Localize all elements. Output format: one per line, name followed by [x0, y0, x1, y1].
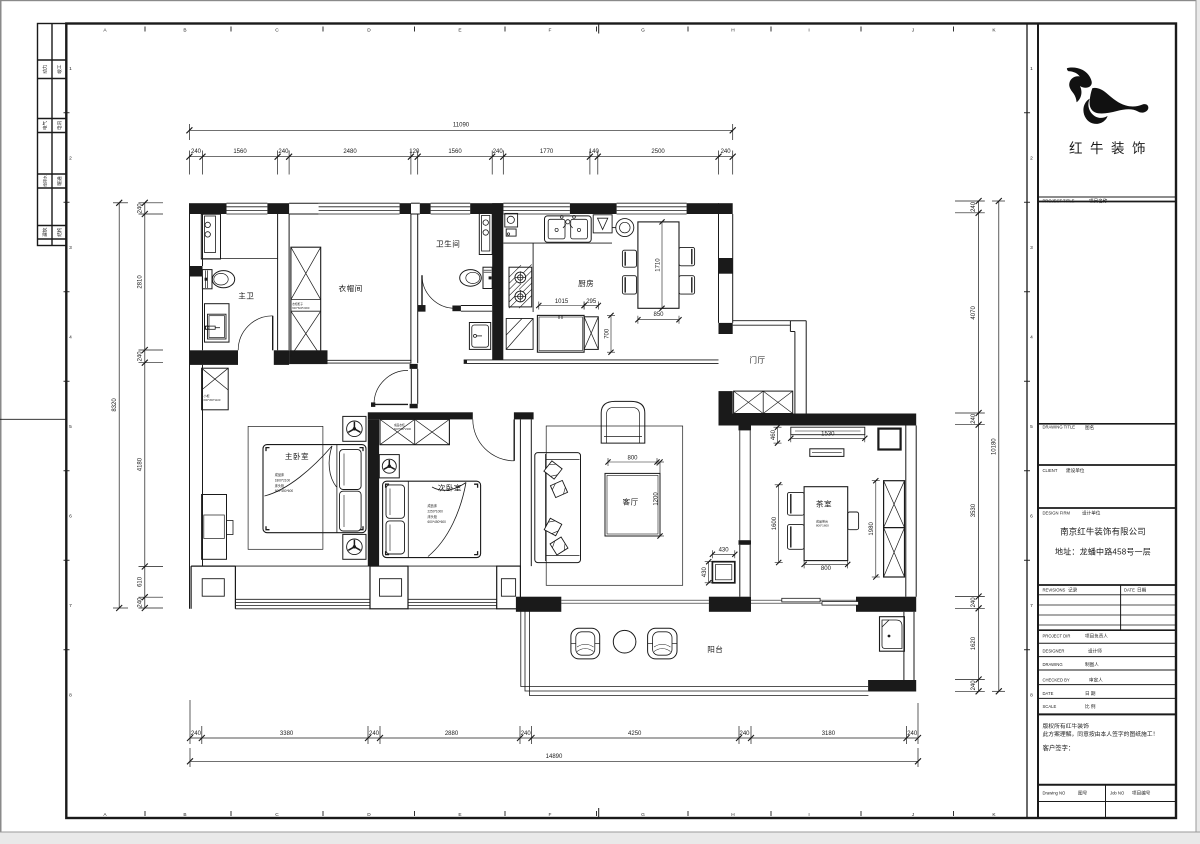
svg-text:H: H — [731, 28, 735, 34]
svg-text:F: F — [549, 812, 552, 818]
svg-text:主卧室: 主卧室 — [285, 451, 309, 461]
svg-text:1: 1 — [1030, 66, 1033, 72]
svg-text:制图人: 制图人 — [1085, 661, 1099, 668]
svg-text:D: D — [367, 812, 371, 818]
svg-text:8320: 8320 — [112, 398, 118, 412]
svg-text:240: 240 — [191, 731, 202, 737]
svg-text:版权所有红牛装饰: 版权所有红牛装饰 — [1043, 722, 1090, 730]
svg-text:6: 6 — [69, 514, 72, 520]
svg-text:240: 240 — [971, 201, 977, 212]
svg-text:430: 430 — [702, 567, 708, 578]
svg-text:240: 240 — [971, 413, 977, 424]
svg-text:小柜: 小柜 — [204, 393, 210, 398]
svg-text:此方案理解，同意按由本人签字的图纸施工！: 此方案理解，同意按由本人签字的图纸施工！ — [1043, 730, 1159, 738]
svg-text:Job NO: Job NO — [1110, 791, 1125, 796]
svg-text:动力: 动力 — [42, 64, 49, 74]
svg-text:E: E — [458, 812, 461, 818]
svg-text:E: E — [458, 28, 461, 34]
svg-text:600*600*2300: 600*600*2300 — [292, 306, 310, 310]
svg-text:C: C — [275, 812, 279, 818]
svg-text:11090: 11090 — [453, 123, 470, 129]
svg-text:240: 240 — [739, 731, 750, 737]
svg-text:给排水: 给排水 — [43, 175, 48, 187]
svg-text:门厅: 门厅 — [749, 355, 765, 365]
svg-text:PROJECT DIR: PROJECT DIR — [1043, 634, 1071, 639]
svg-text:G: G — [641, 28, 645, 34]
svg-text:客户签字：: 客户签字： — [1043, 743, 1075, 752]
svg-text:1800*2100: 1800*2100 — [275, 478, 291, 482]
svg-text:南京红牛装饰有限公司: 南京红牛装饰有限公司 — [1060, 527, 1146, 537]
svg-text:600*450*600: 600*450*600 — [275, 489, 294, 493]
svg-text:DRAWING: DRAWING — [1043, 662, 1063, 667]
svg-text:1980: 1980 — [869, 522, 875, 536]
svg-text:1770: 1770 — [540, 149, 554, 155]
svg-text:4: 4 — [69, 335, 72, 341]
svg-text:5: 5 — [69, 424, 72, 430]
svg-text:建设单位: 建设单位 — [1066, 467, 1085, 474]
svg-text:240: 240 — [493, 149, 504, 155]
svg-text:3180: 3180 — [822, 731, 836, 737]
svg-text:240: 240 — [278, 149, 289, 155]
svg-text:审定人: 审定人 — [1089, 677, 1103, 684]
svg-text:14890: 14890 — [546, 754, 563, 760]
svg-text:床头柜: 床头柜 — [275, 483, 285, 488]
svg-text:2: 2 — [1030, 156, 1033, 162]
svg-text:1015: 1015 — [555, 299, 569, 305]
svg-text:DESIGNER: DESIGNER — [1043, 649, 1065, 654]
svg-text:4250: 4250 — [628, 731, 642, 737]
svg-text:1560: 1560 — [233, 149, 247, 155]
svg-text:240: 240 — [137, 351, 143, 362]
svg-text:8: 8 — [1030, 693, 1033, 699]
svg-text:850: 850 — [653, 312, 664, 318]
svg-text:I: I — [808, 28, 809, 34]
svg-text:7: 7 — [1030, 603, 1033, 609]
svg-text:竣工: 竣工 — [56, 64, 63, 74]
svg-text:B: B — [183, 28, 186, 34]
svg-text:1600: 1600 — [772, 516, 778, 530]
svg-text:主卫: 主卫 — [238, 291, 254, 301]
svg-text:阳台: 阳台 — [707, 644, 723, 654]
svg-text:140: 140 — [589, 149, 600, 155]
svg-text:DRAWING TITLE: DRAWING TITLE — [1043, 425, 1076, 430]
svg-text:地址：龙蟠中路458号一层: 地址：龙蟠中路458号一层 — [1055, 547, 1151, 557]
svg-text:F: F — [549, 28, 552, 34]
svg-text:6: 6 — [1030, 514, 1033, 520]
svg-text:茶室: 茶室 — [816, 498, 832, 508]
svg-text:240: 240 — [971, 680, 977, 691]
svg-text:2480: 2480 — [343, 149, 357, 155]
svg-text:项目名称: 项目名称 — [1089, 198, 1108, 205]
svg-text:电气: 电气 — [42, 121, 48, 131]
svg-text:比 例: 比 例 — [1085, 703, 1096, 710]
svg-text:600*450*1100: 600*450*1100 — [204, 398, 221, 402]
svg-text:DATE: DATE — [1043, 691, 1054, 696]
svg-text:1560: 1560 — [448, 149, 462, 155]
svg-text:衣柜柜子: 衣柜柜子 — [292, 302, 303, 306]
svg-text:240: 240 — [521, 731, 532, 737]
svg-text:CHECKED BY: CHECKED BY — [1043, 678, 1070, 683]
svg-text:460: 460 — [771, 429, 777, 440]
svg-text:1: 1 — [69, 66, 72, 72]
svg-text:卫生间: 卫生间 — [436, 239, 460, 249]
svg-text:10180: 10180 — [991, 438, 997, 455]
svg-text:REVISIONS: REVISIONS — [1043, 588, 1066, 593]
svg-text:4180: 4180 — [137, 457, 143, 471]
svg-text:240: 240 — [137, 597, 143, 608]
svg-text:240: 240 — [971, 597, 977, 608]
svg-text:电讯: 电讯 — [56, 121, 63, 131]
svg-text:1530: 1530 — [821, 432, 835, 438]
svg-text:610: 610 — [137, 576, 143, 587]
svg-text:I: I — [808, 812, 809, 818]
svg-text:SCALE: SCALE — [1043, 704, 1057, 709]
svg-text:4070: 4070 — [971, 306, 977, 320]
svg-text:1710: 1710 — [655, 258, 661, 272]
svg-text:8: 8 — [69, 693, 72, 699]
svg-text:2250*1000: 2250*1000 — [428, 509, 444, 513]
svg-text:4: 4 — [1030, 335, 1033, 341]
svg-text:PROJECT TITLE: PROJECT TITLE — [1043, 198, 1075, 203]
svg-text:成品床: 成品床 — [428, 503, 438, 508]
svg-text:D: D — [367, 28, 371, 34]
svg-text:800: 800 — [627, 455, 638, 461]
svg-text:240: 240 — [137, 203, 143, 214]
svg-text:暖通: 暖通 — [56, 176, 63, 186]
svg-text:衣帽间: 衣帽间 — [338, 283, 362, 293]
svg-text:800: 800 — [821, 566, 832, 572]
svg-text:2810: 2810 — [137, 275, 143, 289]
svg-text:项目编号: 项目编号 — [1132, 790, 1151, 797]
svg-text:设计师: 设计师 — [1088, 648, 1102, 655]
svg-text:295: 295 — [586, 299, 597, 305]
svg-text:建筑: 建筑 — [42, 227, 49, 237]
svg-text:3530: 3530 — [971, 503, 977, 517]
svg-text:床头柜: 床头柜 — [428, 514, 438, 519]
svg-text:240: 240 — [191, 149, 202, 155]
svg-text:1620: 1620 — [971, 636, 977, 650]
svg-text:成品床: 成品床 — [275, 472, 285, 477]
svg-text:2880: 2880 — [445, 731, 459, 737]
svg-text:CLIENT: CLIENT — [1043, 468, 1058, 473]
svg-text:厨房: 厨房 — [578, 278, 594, 288]
svg-text:客厅: 客厅 — [623, 496, 639, 506]
svg-text:DESIGN FIRM: DESIGN FIRM — [1043, 511, 1071, 516]
svg-text:Drawing NO: Drawing NO — [1043, 791, 1067, 796]
svg-text:红牛装饰: 红牛装饰 — [1069, 141, 1153, 156]
svg-text:1200: 1200 — [653, 492, 659, 506]
svg-text:3380: 3380 — [280, 731, 294, 737]
svg-text:2500: 2500 — [651, 149, 665, 155]
svg-text:2: 2 — [69, 156, 72, 162]
svg-text:120: 120 — [409, 149, 420, 155]
svg-text:430: 430 — [719, 548, 730, 554]
svg-text:B: B — [183, 812, 186, 818]
svg-text:结构: 结构 — [56, 227, 63, 237]
svg-text:成品衣柜: 成品衣柜 — [394, 423, 405, 427]
svg-text:项目负责人: 项目负责人 — [1085, 633, 1108, 640]
svg-text:G: G — [641, 812, 645, 818]
svg-text:3: 3 — [1030, 245, 1033, 251]
svg-text:240: 240 — [369, 731, 380, 737]
svg-text:C: C — [275, 28, 279, 34]
svg-text:次卧室: 次卧室 — [438, 482, 462, 492]
svg-text:DATE: DATE — [1124, 588, 1135, 593]
svg-text:240: 240 — [721, 149, 732, 155]
svg-text:5: 5 — [1030, 424, 1033, 430]
svg-text:7: 7 — [69, 603, 72, 609]
svg-text:记录: 记录 — [1068, 587, 1078, 593]
svg-text:800*1600: 800*1600 — [816, 524, 829, 528]
svg-text:设计单位: 设计单位 — [1082, 510, 1101, 517]
svg-text:600*450*600: 600*450*600 — [428, 520, 447, 524]
svg-text:图名: 图名 — [1085, 424, 1094, 431]
svg-text:600*600*2300: 600*600*2300 — [394, 427, 412, 431]
svg-text:240: 240 — [907, 731, 918, 737]
svg-text:3: 3 — [69, 245, 72, 251]
svg-text:700: 700 — [604, 328, 610, 339]
svg-text:H: H — [731, 812, 735, 818]
